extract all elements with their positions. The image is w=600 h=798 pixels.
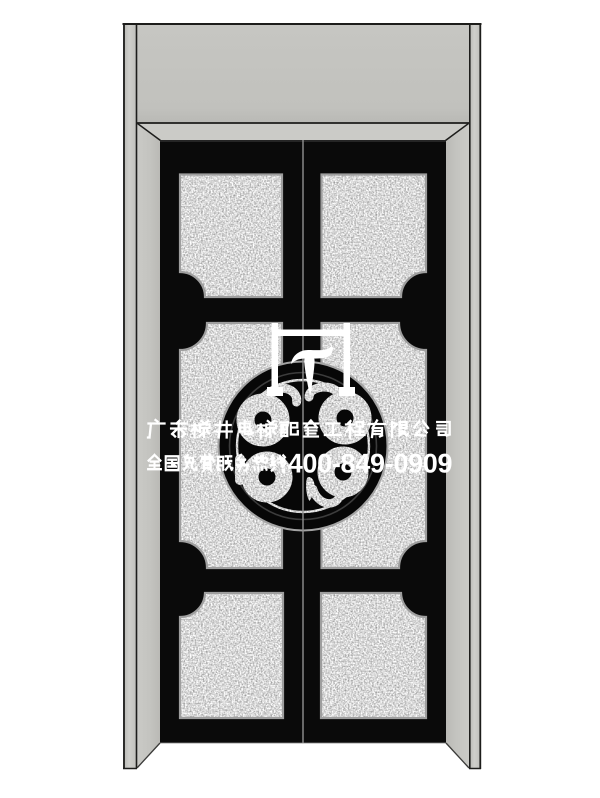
svg-text::400-849-0909: :400-849-0909 xyxy=(279,449,453,479)
